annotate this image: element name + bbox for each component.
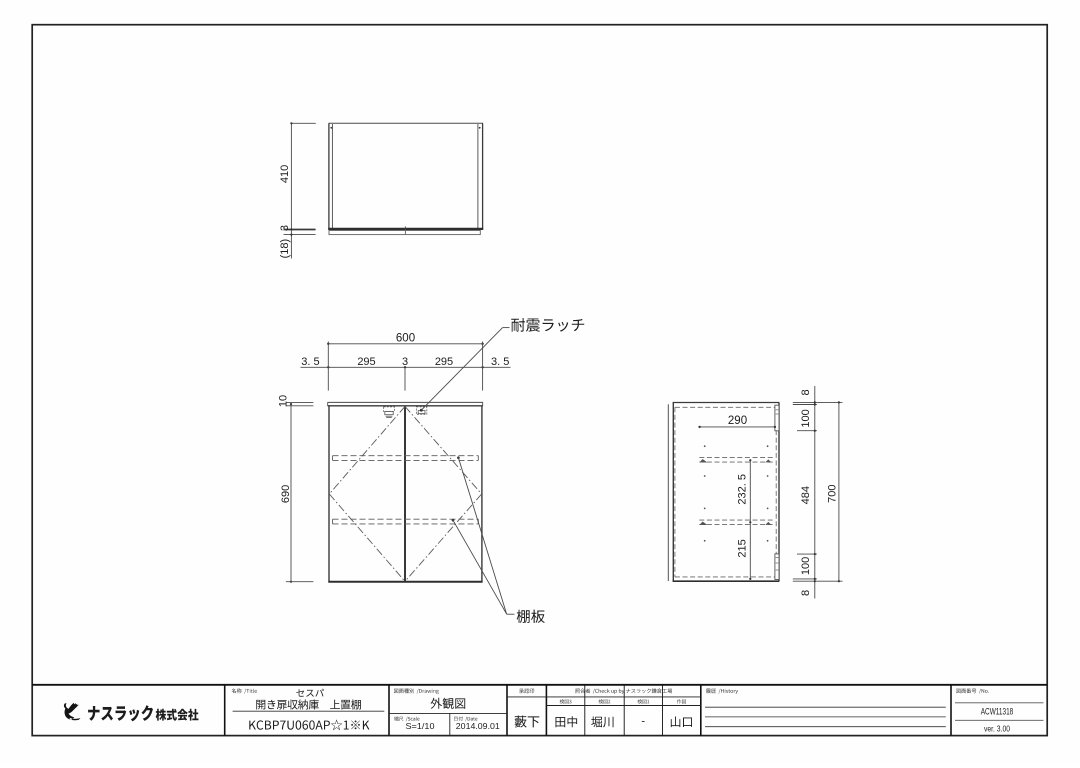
svg-text:3: 3 bbox=[279, 225, 291, 231]
svg-text:410: 410 bbox=[279, 165, 291, 183]
svg-text:3. 5: 3. 5 bbox=[491, 356, 509, 368]
svg-text:-: - bbox=[641, 716, 645, 728]
svg-text:700: 700 bbox=[826, 485, 838, 503]
svg-text:100: 100 bbox=[800, 409, 812, 427]
svg-text:295: 295 bbox=[357, 356, 375, 368]
svg-text:690: 690 bbox=[280, 485, 292, 503]
svg-text:2014.09.01: 2014.09.01 bbox=[456, 722, 500, 731]
svg-text:8: 8 bbox=[800, 389, 812, 395]
svg-text:S=1/10: S=1/10 bbox=[406, 722, 435, 731]
svg-text:232. 5: 232. 5 bbox=[736, 474, 748, 505]
svg-text:484: 484 bbox=[800, 486, 812, 504]
svg-text:295: 295 bbox=[435, 356, 453, 368]
svg-text:600: 600 bbox=[396, 332, 415, 344]
svg-text:ACW11318: ACW11318 bbox=[981, 706, 1014, 717]
svg-text:290: 290 bbox=[728, 415, 747, 427]
svg-text:3: 3 bbox=[402, 356, 408, 368]
svg-text:215: 215 bbox=[736, 539, 748, 557]
svg-text:10: 10 bbox=[277, 395, 289, 407]
svg-text:8: 8 bbox=[800, 590, 812, 596]
svg-text:(18): (18) bbox=[279, 239, 291, 259]
svg-text:100: 100 bbox=[800, 557, 812, 575]
svg-text:ver. 3.00: ver. 3.00 bbox=[984, 724, 1010, 734]
svg-text:3. 5: 3. 5 bbox=[301, 356, 319, 368]
